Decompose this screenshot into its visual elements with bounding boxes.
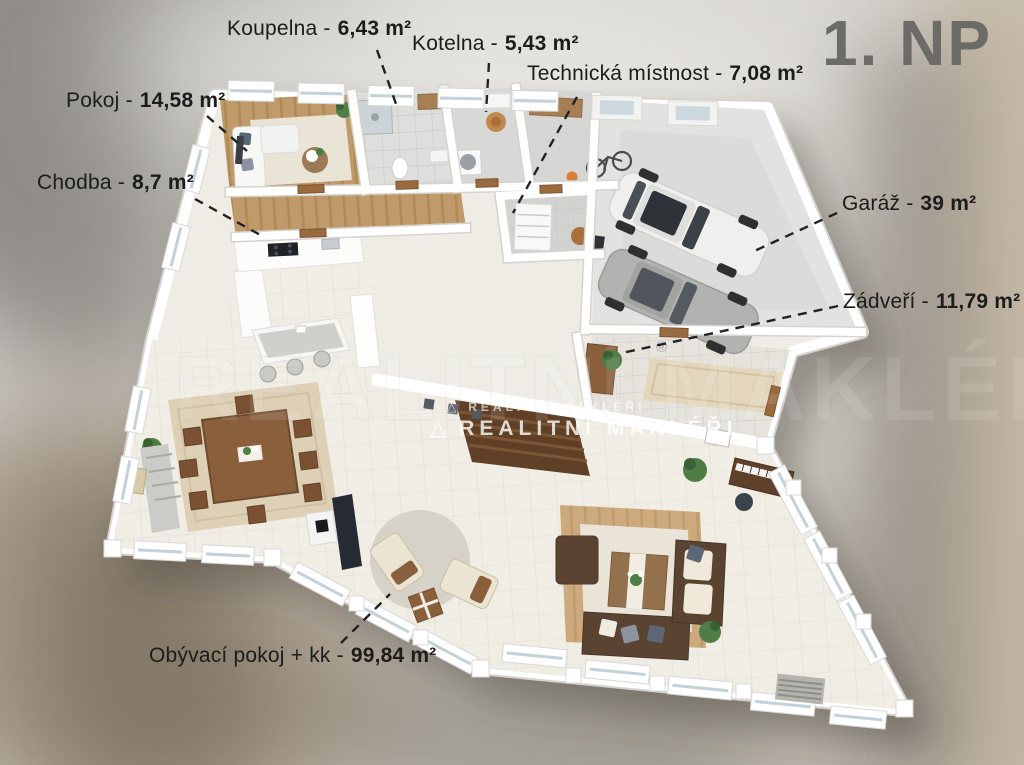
watermark-brand-large-text: REALITNÍ MAKLÉŘI xyxy=(459,417,737,440)
radiator xyxy=(775,674,825,705)
room-name: Pokoj - xyxy=(66,89,133,112)
room-label-koupelna: Koupelna -6,43 m² xyxy=(227,17,411,41)
room-name: Technická místnost - xyxy=(527,62,722,85)
room-area: 7,08 m² xyxy=(729,62,803,85)
room-name: Chodba - xyxy=(37,171,125,194)
room-label-chodba: Chodba -8,7 m² xyxy=(37,171,194,195)
realitni-makleri-logo-triangle-icon: △ xyxy=(430,417,451,440)
room-name: Kotelna - xyxy=(412,32,498,55)
floor-plan-screenshot: REALITNÍ MAKLÉŘI ® Pokoj -14,58 m² Koupe… xyxy=(0,0,1024,765)
room-area: 8,7 m² xyxy=(132,171,194,194)
room-label-obyvaci-pokoj: Obývací pokoj + kk -99,84 m² xyxy=(149,644,436,668)
room-label-technicka-mistnost: Technická místnost -7,08 m² xyxy=(527,62,803,86)
room-area: 99,84 m² xyxy=(351,644,437,667)
watermark-registered-mark: ® xyxy=(656,339,667,356)
watermark-brand-small-text: REALITNÍ MAKLÉŘI xyxy=(468,400,645,414)
room-label-garaz: Garáž -39 m² xyxy=(842,192,976,216)
room-area: 6,43 m² xyxy=(338,17,412,40)
realitni-makleri-logo-triangle-icon: △ xyxy=(447,400,460,414)
room-area: 5,43 m² xyxy=(505,32,579,55)
room-label-zadveri: Zádveří -11,79 m² xyxy=(843,290,1020,314)
room-area: 39 m² xyxy=(920,192,976,215)
floor-title: 1. NP xyxy=(822,6,992,80)
watermark-brand-large: △REALITNÍ MAKLÉŘI xyxy=(430,416,737,441)
coffee-table xyxy=(608,552,668,610)
room-area: 14,58 m² xyxy=(140,89,226,112)
room-label-pokoj: Pokoj -14,58 m² xyxy=(66,89,225,113)
room-name: Koupelna - xyxy=(227,17,331,40)
room-area: 11,79 m² xyxy=(936,290,1021,313)
room-name: Garáž - xyxy=(842,192,913,215)
watermark-brand-small: △REALITNÍ MAKLÉŘI xyxy=(447,400,646,414)
room-name: Obývací pokoj + kk - xyxy=(149,644,344,667)
room-name: Zádveří - xyxy=(843,290,929,313)
room-label-kotelna: Kotelna -5,43 m² xyxy=(412,32,579,56)
